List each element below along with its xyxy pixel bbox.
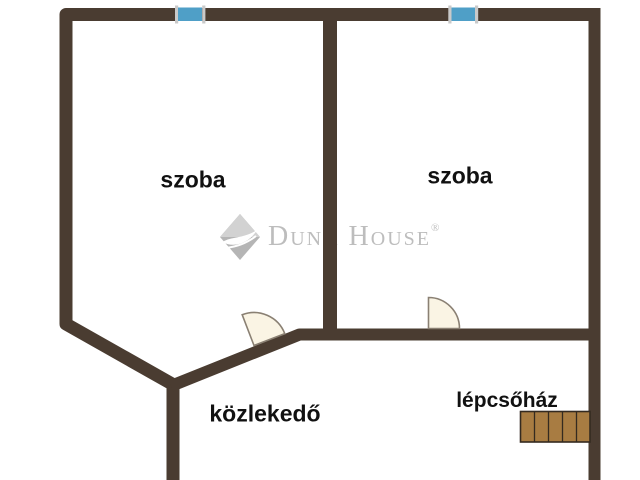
wall-interior-horizontal (171, 335, 600, 387)
window-frame-icon (202, 6, 205, 24)
window-glass-icon (452, 8, 476, 22)
door-swing-icon (429, 298, 460, 329)
window-1 (175, 6, 205, 24)
window-frame-icon (475, 6, 478, 24)
stairs-body (521, 412, 591, 443)
floorplan-canvas: Duna House® (0, 0, 640, 480)
room-label-szoba-right: szoba (427, 163, 492, 190)
room-label-kozlekedo: közlekedő (209, 401, 320, 428)
room-label-szoba-left: szoba (160, 167, 225, 194)
room-label-lepcsohaz: lépcsőház (456, 389, 558, 413)
window-2 (448, 6, 478, 24)
staircase (521, 412, 591, 443)
window-glass-icon (178, 8, 202, 22)
window-frame-icon (448, 6, 451, 24)
door-right (429, 298, 460, 329)
window-frame-icon (175, 6, 178, 24)
